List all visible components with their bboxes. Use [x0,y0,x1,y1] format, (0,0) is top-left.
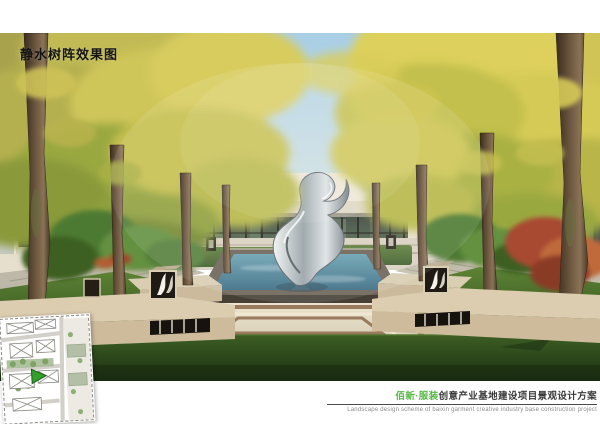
project-name: 佰新·服装 [395,391,438,402]
render-title: 静水树阵效果图 [20,44,118,63]
project-title-rest: 创意产业基地建设项目景观设计方案 [439,391,597,402]
presentation-board: 静水树阵效果图 [0,0,600,424]
project-subtitle-en: Landscape design scheme of baixin garmen… [327,407,597,413]
project-title-line: 佰新·服装创意产业基地建设项目景观设计方案 [327,391,597,403]
siteplan-drawing [0,313,96,424]
siteplan-inset [0,313,96,424]
caption-rule [327,404,597,405]
light-haze [110,63,490,303]
project-caption: 佰新·服装创意产业基地建设项目景观设计方案 Landscape design s… [327,391,597,413]
